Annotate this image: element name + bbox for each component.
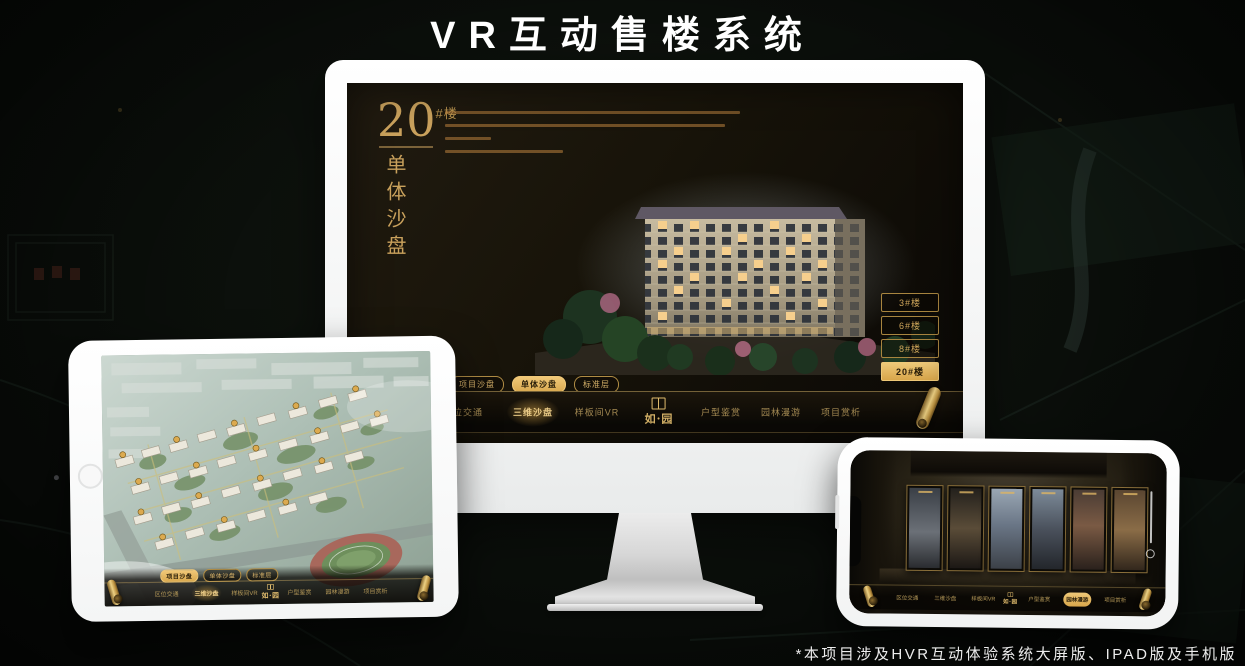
tablet-nav-bar: 项目沙盘 单体沙盘 标准层 区位交通 三维沙盘 样板间VR 如·园 户型鉴赏 园…: [104, 564, 433, 607]
floor-button-group: 3#楼 6#楼 8#楼 20#楼: [881, 293, 939, 381]
description-line: [445, 137, 491, 140]
description-line: [445, 150, 563, 153]
phone-nav-showroom-vr[interactable]: 样板间VR: [968, 591, 998, 605]
marketing-composite: VR互动售楼系统 20#楼 单体沙盘: [0, 0, 1245, 666]
monitor-stand-base: [547, 604, 763, 611]
scroll-end-icon: [416, 574, 432, 601]
floor-button-3[interactable]: 3#楼: [881, 293, 939, 312]
floor-button-6[interactable]: 6#楼: [881, 316, 939, 335]
building-subtitle-vertical: 单体沙盘: [381, 154, 410, 262]
building-number: 20: [377, 93, 436, 147]
scroll-end-icon: [106, 579, 122, 606]
phone-nav-project-appreciation[interactable]: 项目赏析: [1101, 593, 1129, 607]
nav-item-project-appreciation[interactable]: 项目赏析: [815, 398, 867, 427]
brand-seal-icon: [1008, 592, 1014, 597]
phone-side-button[interactable]: [835, 495, 839, 529]
floor-button-20[interactable]: 20#楼: [881, 362, 939, 381]
tablet-nav-location-traffic[interactable]: 区位交通: [151, 585, 181, 602]
tablet-nav-unit-appreciation[interactable]: 户型鉴赏: [284, 583, 314, 600]
brand-logo: 如·园: [645, 398, 674, 427]
phone-nav-garden-roam[interactable]: 园林漫游: [1063, 592, 1091, 606]
page-title: VR互动售楼系统: [0, 4, 1245, 59]
brand-seal-icon: [267, 584, 274, 590]
phone-screen: 区位交通 三维沙盘 样板间VR 如·园 户型鉴赏 园林漫游 项目赏析: [849, 450, 1167, 616]
tablet-nav-row: 区位交通 三维沙盘 样板间VR 如·园 户型鉴赏 园林漫游 项目赏析: [104, 578, 433, 606]
scroll-menu-handle[interactable]: [914, 385, 943, 431]
phone-nav-bar: 区位交通 三维沙盘 样板间VR 如·园 户型鉴赏 园林漫游 项目赏析: [849, 584, 1165, 612]
gallery-panel-5[interactable]: [1070, 486, 1108, 572]
gallery-panel-4[interactable]: [1029, 486, 1067, 572]
scroll-end-icon: [1138, 588, 1153, 611]
tablet-screen: 项目沙盘 单体沙盘 标准层 区位交通 三维沙盘 样板间VR 如·园 户型鉴赏 园…: [101, 351, 433, 607]
nav-item-garden-roam[interactable]: 园林漫游: [755, 398, 807, 427]
tablet-nav-garden-roam[interactable]: 园林漫游: [322, 583, 352, 600]
scene-lintel: [911, 451, 1107, 479]
brand-seal-icon: [652, 398, 666, 410]
compass-icon[interactable]: [1146, 549, 1155, 558]
gallery-panel-2[interactable]: [947, 485, 985, 571]
tablet-camera-icon: [54, 475, 59, 480]
phone-nav-3d-sandbox[interactable]: 三维沙盘: [931, 591, 959, 605]
phone-notch: [850, 496, 862, 566]
tablet-nav-3d-sandbox[interactable]: 三维沙盘: [191, 584, 221, 601]
scroll-end-icon: [862, 585, 876, 608]
description-line: [445, 124, 725, 127]
brand-logo: 如·园: [1003, 592, 1018, 605]
building-3d-render: [495, 157, 935, 375]
floor-button-8[interactable]: 8#楼: [881, 339, 939, 358]
nav-item-unit-appreciation[interactable]: 户型鉴赏: [695, 398, 747, 427]
gallery-panel-1[interactable]: [906, 485, 944, 571]
gallery-panel-3[interactable]: [988, 486, 1026, 572]
brand-logo-text: 如·园: [1003, 597, 1018, 605]
nav-item-showroom-vr[interactable]: 样板间VR: [569, 398, 626, 427]
gallery-panel-6[interactable]: [1111, 487, 1149, 573]
brand-logo-text: 如·园: [262, 590, 280, 600]
tablet-nav-showroom-vr[interactable]: 样板间VR: [228, 584, 261, 601]
phone-nav-unit-appreciation[interactable]: 户型鉴赏: [1025, 592, 1053, 606]
description-line: [445, 111, 740, 114]
brand-logo-text: 如·园: [645, 411, 674, 427]
nav-item-3d-sandbox[interactable]: 三维沙盘: [507, 398, 559, 427]
tablet-nav-project-appreciation[interactable]: 项目赏析: [360, 582, 390, 599]
description-text-lines: [445, 111, 740, 163]
brand-logo: 如·园: [261, 584, 279, 600]
phone-nav-location-traffic[interactable]: 区位交通: [893, 591, 921, 605]
footnote-text: *本项目涉及HVR互动体验系统大屏版、IPAD版及手机版: [796, 643, 1237, 664]
